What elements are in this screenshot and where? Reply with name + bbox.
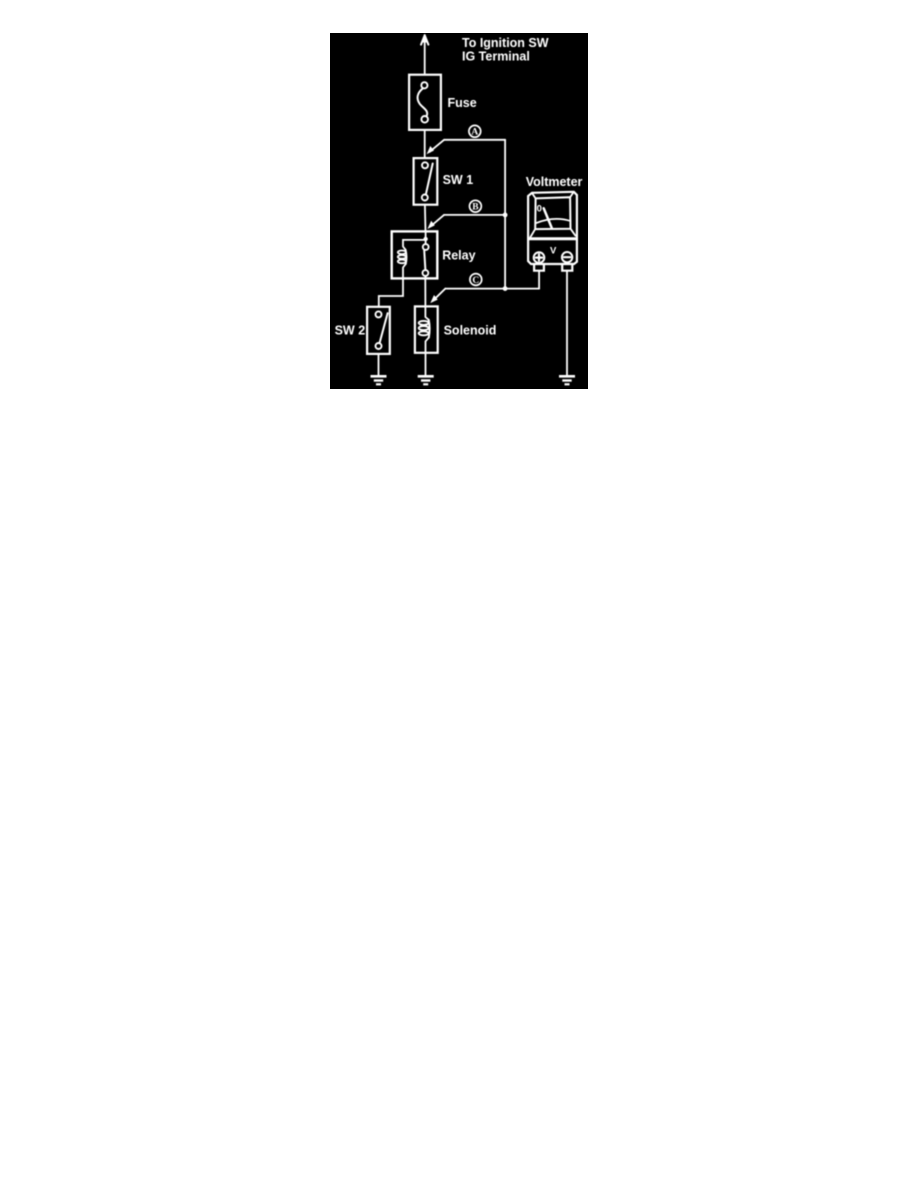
svg-text:Fuse: Fuse bbox=[448, 96, 477, 110]
svg-text:Relay: Relay bbox=[442, 248, 475, 262]
svg-text:To Ignition SW: To Ignition SW bbox=[462, 36, 549, 50]
svg-text:SW 2: SW 2 bbox=[335, 324, 366, 338]
svg-text:B: B bbox=[472, 203, 479, 213]
svg-text:IG Terminal: IG Terminal bbox=[462, 50, 530, 64]
svg-text:V: V bbox=[550, 246, 557, 257]
svg-text:Solenoid: Solenoid bbox=[444, 324, 497, 338]
svg-text:SW 1: SW 1 bbox=[443, 173, 474, 187]
svg-text:C: C bbox=[472, 276, 479, 286]
svg-text:Voltmeter: Voltmeter bbox=[526, 175, 583, 189]
svg-text:0: 0 bbox=[537, 203, 542, 214]
svg-text:A: A bbox=[471, 128, 478, 138]
